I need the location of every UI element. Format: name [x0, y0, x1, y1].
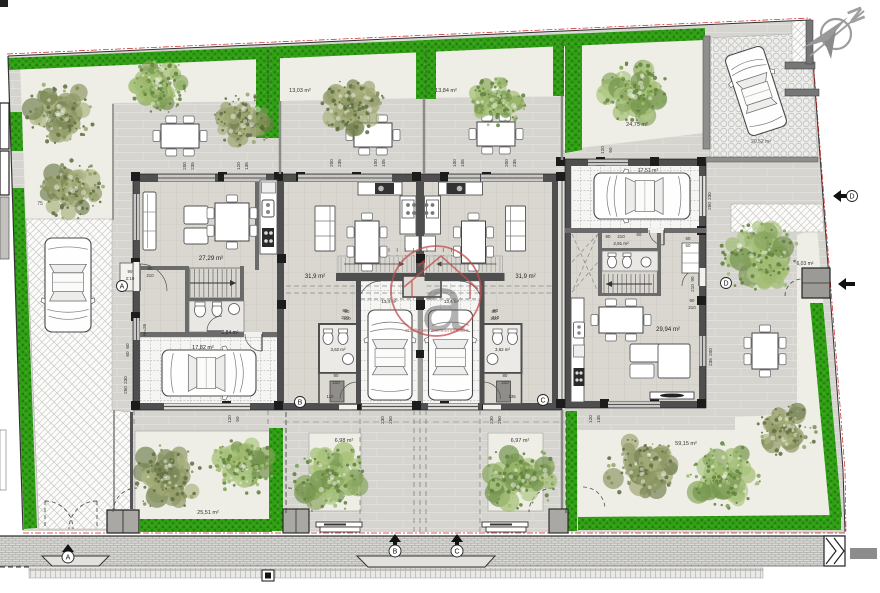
svg-text:C: C [454, 549, 459, 556]
svg-text:3,62 m²: 3,62 m² [331, 347, 346, 352]
svg-text:60: 60 [125, 351, 130, 357]
svg-text:60: 60 [686, 243, 691, 248]
svg-text:6,03 m²: 6,03 m² [797, 261, 814, 267]
svg-text:200: 200 [504, 159, 509, 167]
svg-text:Hi=26: Hi=26 [142, 323, 147, 336]
svg-text:31,9 m²: 31,9 m² [305, 274, 325, 280]
svg-text:135: 135 [244, 162, 249, 170]
svg-text:80: 80 [148, 266, 153, 271]
svg-text:110: 110 [327, 394, 335, 399]
svg-text:59,15 m²: 59,15 m² [675, 441, 697, 447]
svg-text:25,51 m²: 25,51 m² [197, 510, 219, 516]
svg-text:80: 80 [334, 373, 339, 378]
svg-text:6,98 m²: 6,98 m² [335, 438, 354, 444]
svg-text:105: 105 [460, 159, 465, 167]
svg-text:230: 230 [489, 416, 494, 424]
svg-text:3,62 m²: 3,62 m² [495, 347, 510, 352]
svg-text:80: 80 [606, 234, 611, 239]
svg-text:studio tecnico immobiliare: studio tecnico immobiliare [405, 328, 468, 334]
svg-text:13,84 m²: 13,84 m² [435, 88, 457, 94]
svg-text:2,91 m²: 2,91 m² [613, 241, 629, 246]
svg-text:210: 210 [332, 380, 340, 385]
svg-text:100: 100 [373, 159, 378, 167]
svg-text:D: D [723, 281, 728, 288]
svg-text:A: A [66, 555, 71, 562]
svg-text:120: 120 [227, 415, 232, 423]
svg-text:80: 80 [492, 309, 497, 314]
svg-text:17,82 m²: 17,82 m² [192, 345, 214, 351]
svg-text:200: 200 [329, 159, 334, 167]
svg-text:235: 235 [190, 162, 195, 170]
svg-text:210: 210 [688, 305, 696, 310]
svg-text:120: 120 [600, 146, 605, 154]
svg-text:80: 80 [503, 373, 508, 378]
svg-text:210: 210 [501, 380, 509, 385]
svg-text:17,51 m²: 17,51 m² [638, 168, 659, 174]
svg-text:50: 50 [235, 416, 240, 422]
svg-text:210: 210 [490, 316, 498, 321]
svg-text:120: 120 [236, 162, 241, 170]
svg-text:31,9 m²: 31,9 m² [515, 274, 535, 280]
svg-text:C: C [540, 398, 545, 405]
svg-text:250: 250 [123, 386, 128, 394]
svg-text:60: 60 [686, 236, 691, 241]
svg-text:D: D [849, 194, 854, 201]
svg-text:29,94 m²: 29,94 m² [656, 327, 680, 333]
svg-text:135: 135 [508, 394, 516, 399]
svg-text:27,29 m²: 27,29 m² [199, 255, 223, 262]
svg-text:200: 200 [708, 348, 713, 356]
svg-text:20,52 m²: 20,52 m² [751, 139, 771, 145]
svg-text:235: 235 [708, 358, 713, 366]
svg-text:2:10: 2:10 [126, 276, 135, 281]
svg-text:230: 230 [123, 376, 128, 384]
svg-text:80: 80 [345, 309, 350, 314]
svg-text:90: 90 [690, 298, 695, 303]
svg-text:60: 60 [125, 343, 130, 349]
svg-text:13,4 m²: 13,4 m² [382, 299, 397, 304]
svg-text:250: 250 [497, 416, 502, 424]
svg-text:230: 230 [707, 192, 712, 200]
svg-text:210: 210 [146, 273, 154, 278]
svg-text:6,97 m²: 6,97 m² [511, 438, 530, 444]
svg-text:230: 230 [380, 416, 385, 424]
svg-text:235: 235 [512, 159, 517, 167]
svg-text:A: A [120, 284, 125, 291]
svg-text:90: 90 [128, 269, 133, 274]
svg-text:50: 50 [608, 147, 613, 153]
svg-text:B: B [393, 549, 398, 556]
svg-text:90: 90 [690, 276, 695, 282]
svg-text:135: 135 [596, 415, 601, 423]
svg-text:2,84 m²: 2,84 m² [222, 330, 239, 336]
svg-text:250: 250 [388, 416, 393, 424]
svg-text:250: 250 [707, 202, 712, 210]
svg-text:13,03 m²: 13,03 m² [289, 88, 311, 94]
svg-text:24,75 m²: 24,75 m² [626, 122, 648, 128]
svg-text:210: 210 [617, 234, 625, 239]
svg-text:235: 235 [337, 159, 342, 167]
svg-text:105: 105 [381, 159, 386, 167]
svg-text:200: 200 [182, 162, 187, 170]
svg-text:75: 75 [37, 201, 43, 207]
svg-text:B: B [298, 400, 303, 407]
svg-text:210: 210 [690, 284, 695, 292]
svg-text:60: 60 [637, 232, 642, 237]
svg-text:100: 100 [452, 159, 457, 167]
svg-text:120: 120 [588, 415, 593, 423]
svg-text:210: 210 [343, 316, 351, 321]
